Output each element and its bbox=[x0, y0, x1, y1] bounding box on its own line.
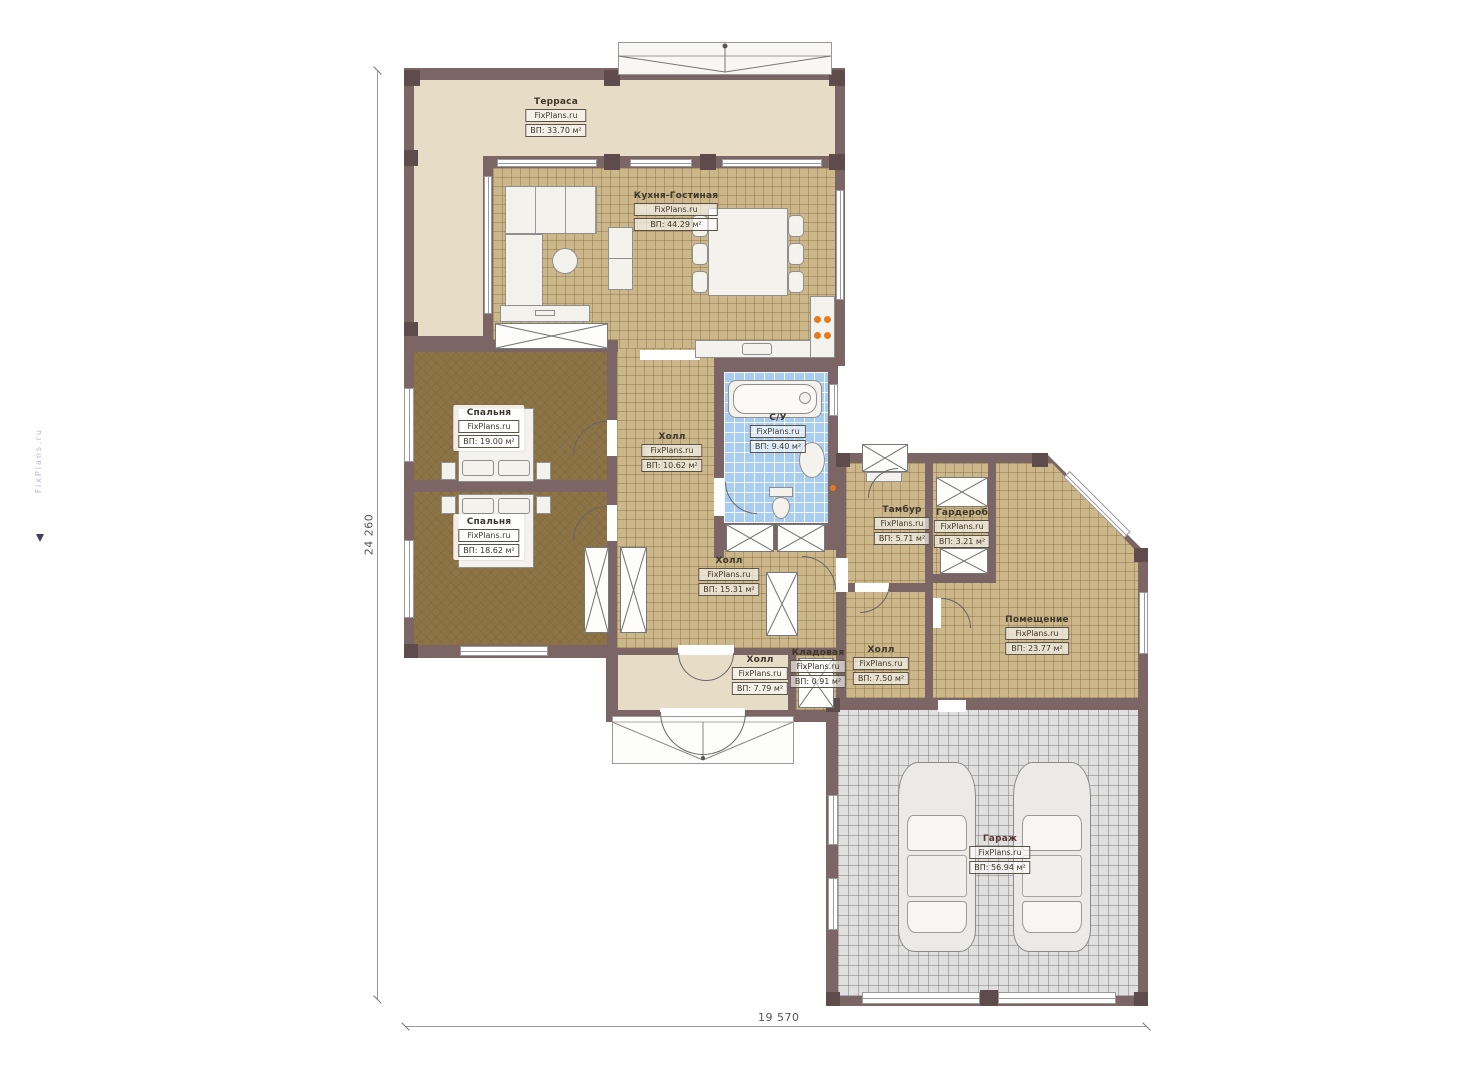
wall-tambour-right bbox=[925, 463, 933, 698]
room-name: Гардероб bbox=[934, 508, 990, 518]
pillow bbox=[462, 498, 494, 514]
bathtub-drain bbox=[799, 392, 811, 404]
room-area: ВП: 19.00 м² bbox=[458, 435, 519, 448]
window-bedroom2-bottom bbox=[460, 646, 548, 656]
window-kitchen-top-3 bbox=[722, 159, 822, 167]
room-brand: FixPlans.ru bbox=[458, 420, 519, 433]
pillow bbox=[498, 460, 530, 476]
room-area: ВП: 5.71 м² bbox=[874, 532, 930, 545]
car-windshield bbox=[907, 815, 967, 851]
door-opening-bedroom2 bbox=[607, 505, 617, 541]
wardrobe-closet-bottom bbox=[940, 548, 988, 574]
room-brand: FixPlans.ru bbox=[732, 667, 788, 680]
pillar bbox=[826, 992, 840, 1006]
kitchen-sink bbox=[742, 343, 772, 355]
nightstand bbox=[536, 496, 551, 514]
stove-burner bbox=[824, 316, 831, 323]
sofa-horizontal bbox=[505, 186, 597, 234]
dresser-handle bbox=[535, 310, 555, 316]
room-label-storage: Кладовая FixPlans.ru ВП: 0.91 м² bbox=[790, 648, 846, 688]
room-brand: FixPlans.ru bbox=[853, 657, 909, 670]
annex-entry-steps bbox=[862, 444, 908, 472]
room-area: ВП: 18.62 м² bbox=[458, 544, 519, 557]
bedroom2-closet bbox=[584, 547, 609, 633]
dimension-width-label: 19 570 bbox=[758, 1011, 800, 1024]
wall-wardrobe-bottom bbox=[933, 574, 996, 583]
living-closet bbox=[495, 323, 608, 349]
room-brand: FixPlans.ru bbox=[525, 109, 586, 122]
room-brand: FixPlans.ru bbox=[874, 517, 930, 530]
room-label-garage: Гараж FixPlans.ru ВП: 56.94 м² bbox=[969, 834, 1030, 874]
window-kitchen-top-1 bbox=[497, 159, 597, 167]
window-garage-left-1 bbox=[828, 795, 838, 845]
room-area: ВП: 0.91 м² bbox=[790, 675, 846, 688]
room-area: ВП: 23.77 м² bbox=[1005, 642, 1069, 655]
window-kitchen-top-2 bbox=[630, 159, 692, 167]
pillow bbox=[498, 498, 530, 514]
coffee-table bbox=[552, 248, 578, 274]
room-name: Холл bbox=[641, 432, 702, 442]
door-opening-garage bbox=[938, 700, 966, 712]
room-label-terrace: Терраса FixPlans.ru ВП: 33.70 м² bbox=[525, 97, 586, 137]
pillar bbox=[404, 322, 418, 336]
room-area: ВП: 9.40 м² bbox=[750, 440, 806, 453]
car-roof bbox=[907, 855, 967, 897]
room-name: Гараж bbox=[969, 834, 1030, 844]
pillar bbox=[836, 453, 850, 467]
toilet-tank bbox=[769, 487, 793, 497]
window-bathroom-right bbox=[829, 384, 838, 416]
wall-hall-bathroom bbox=[714, 362, 724, 558]
car bbox=[898, 762, 976, 952]
room-label-hall-15: Холл FixPlans.ru ВП: 15.31 м² bbox=[698, 556, 759, 596]
room-label-bedroom1: Спальня FixPlans.ru ВП: 19.00 м² bbox=[453, 405, 524, 451]
nightstand bbox=[536, 462, 551, 480]
room-name: Спальня bbox=[458, 517, 519, 527]
stove-burner bbox=[824, 332, 831, 339]
room-name: Помещение bbox=[1005, 615, 1069, 625]
room-name: Кухня-Гостиная bbox=[634, 191, 718, 201]
door-opening-tambour bbox=[836, 558, 848, 592]
room-area: ВП: 44.29 м² bbox=[634, 218, 718, 231]
dining-chair bbox=[788, 243, 804, 265]
room-name: Тамбур bbox=[874, 505, 930, 515]
boiler-marker bbox=[830, 485, 836, 491]
car-rear-window bbox=[1022, 901, 1082, 933]
pillar bbox=[1134, 992, 1148, 1006]
sofa-vertical bbox=[505, 234, 543, 306]
passage-kitchen-hall bbox=[640, 350, 700, 360]
bathroom-closet-1 bbox=[726, 524, 774, 552]
room-name: Спальня bbox=[458, 408, 519, 418]
pillar bbox=[404, 150, 418, 166]
car-windshield bbox=[1022, 815, 1082, 851]
room-brand: FixPlans.ru bbox=[750, 425, 806, 438]
window-kitchen-right bbox=[836, 190, 844, 300]
room-label-bathroom: С/У FixPlans.ru ВП: 9.40 м² bbox=[750, 413, 806, 453]
car-rear-window bbox=[907, 901, 967, 933]
room-label-tambour: Тамбур FixPlans.ru ВП: 5.71 м² bbox=[874, 505, 930, 545]
room-name: Кладовая bbox=[790, 648, 846, 658]
door-opening-bathroom bbox=[714, 478, 724, 516]
terrace-floor-left bbox=[414, 156, 483, 336]
room-name: Холл bbox=[853, 645, 909, 655]
window-room-right bbox=[1139, 592, 1148, 654]
stove-burner bbox=[814, 332, 821, 339]
terrace-floor bbox=[414, 80, 835, 156]
dimension-height-label: 24 260 bbox=[362, 514, 375, 556]
room-area: ВП: 56.94 м² bbox=[969, 861, 1030, 874]
garage-door-2 bbox=[998, 992, 1116, 1004]
bathroom-closet-2 bbox=[777, 524, 825, 552]
dining-chair bbox=[692, 271, 708, 293]
dimension-line-vertical bbox=[377, 70, 378, 1000]
dining-chair bbox=[788, 271, 804, 293]
room-label-room: Помещение FixPlans.ru ВП: 23.77 м² bbox=[1005, 615, 1069, 655]
room-area: ВП: 15.31 м² bbox=[698, 583, 759, 596]
wall-kitchen-bathroom bbox=[714, 358, 838, 372]
room-name: Холл bbox=[698, 556, 759, 566]
pillar bbox=[404, 70, 420, 86]
room-brand: FixPlans.ru bbox=[790, 660, 846, 673]
room-brand: FixPlans.ru bbox=[698, 568, 759, 581]
pillar bbox=[700, 154, 716, 170]
window-kitchen-left bbox=[484, 176, 492, 314]
room-brand: FixPlans.ru bbox=[641, 444, 702, 457]
room-label-wardrobe: Гардероб FixPlans.ru ВП: 3.21 м² bbox=[934, 508, 990, 548]
pillar bbox=[1134, 548, 1148, 562]
garage-door-1 bbox=[862, 992, 980, 1004]
room-brand: FixPlans.ru bbox=[1005, 627, 1069, 640]
tv-unit bbox=[608, 227, 633, 290]
room-brand: FixPlans.ru bbox=[969, 846, 1030, 859]
terrace-canopy bbox=[618, 42, 832, 75]
pillar bbox=[829, 154, 845, 170]
room-label-bedroom2: Спальня FixPlans.ru ВП: 18.62 м² bbox=[453, 514, 524, 560]
room-label-entrance-hall: Холл FixPlans.ru ВП: 7.79 м² bbox=[732, 655, 788, 695]
room-brand: FixPlans.ru bbox=[458, 529, 519, 542]
room-area: ВП: 33.70 м² bbox=[525, 124, 586, 137]
window-bedroom1-left bbox=[404, 388, 414, 462]
side-watermark: FixPlans.ru bbox=[34, 428, 43, 493]
nightstand bbox=[441, 462, 456, 480]
room-label-hall-10: Холл FixPlans.ru ВП: 10.62 м² bbox=[641, 432, 702, 472]
window-garage-left-2 bbox=[828, 878, 838, 930]
room-area: ВП: 10.62 м² bbox=[641, 459, 702, 472]
wardrobe-closet-top bbox=[936, 477, 988, 507]
floor-plan-canvas: FixPlans.ru bbox=[0, 0, 1474, 1080]
door-opening-room bbox=[933, 598, 941, 628]
room-name: Терраса bbox=[525, 97, 586, 107]
kitchen-stove-counter bbox=[810, 296, 835, 358]
pillar bbox=[980, 990, 998, 1006]
pillar bbox=[1032, 453, 1048, 467]
hall-cabinet bbox=[766, 572, 798, 636]
room-area: ВП: 7.50 м² bbox=[853, 672, 909, 685]
north-arrow-icon bbox=[36, 534, 44, 542]
car-roof bbox=[1022, 855, 1082, 897]
nightstand bbox=[441, 496, 456, 514]
dining-table bbox=[708, 208, 788, 296]
pillow bbox=[462, 460, 494, 476]
room-label-kitchen-living: Кухня-Гостиная FixPlans.ru ВП: 44.29 м² bbox=[634, 191, 718, 231]
hall-closet bbox=[620, 547, 647, 633]
room-brand: FixPlans.ru bbox=[634, 203, 718, 216]
room-label-hall-75: Холл FixPlans.ru ВП: 7.50 м² bbox=[853, 645, 909, 685]
window-bedroom2-left bbox=[404, 540, 414, 618]
pillar bbox=[404, 644, 418, 658]
door-opening-bedroom1 bbox=[607, 420, 617, 456]
room-name: Холл bbox=[732, 655, 788, 665]
room-area: ВП: 3.21 м² bbox=[934, 535, 990, 548]
room-brand: FixPlans.ru bbox=[934, 520, 990, 533]
dining-chair bbox=[788, 215, 804, 237]
dining-chair bbox=[692, 243, 708, 265]
pillar bbox=[604, 154, 620, 170]
dimension-line-horizontal bbox=[405, 1026, 1146, 1027]
room-area: ВП: 7.79 м² bbox=[732, 682, 788, 695]
stove-burner bbox=[814, 316, 821, 323]
room-name: С/У bbox=[750, 413, 806, 423]
